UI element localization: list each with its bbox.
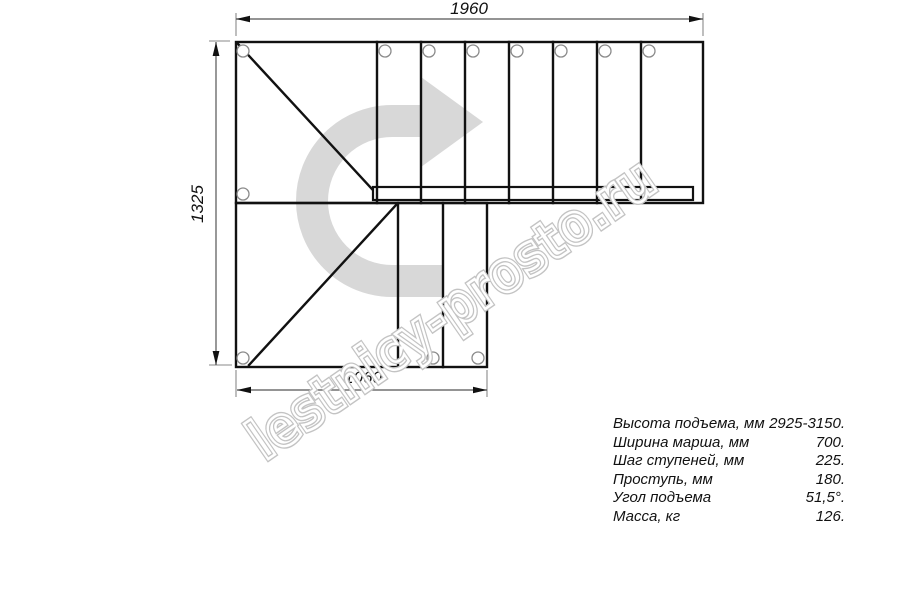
spec-row: Ширина марша, мм 700. <box>613 434 845 453</box>
spec-label: Проступь, мм <box>613 471 713 490</box>
spec-value: 51,5°. <box>806 489 845 508</box>
spec-row: Угол подъема 51,5°. <box>613 489 845 508</box>
mount-hole <box>643 45 655 57</box>
dim-top-label: 1960 <box>450 0 488 18</box>
mount-hole <box>511 45 523 57</box>
spec-value: 700. <box>816 434 845 453</box>
mount-hole <box>467 45 479 57</box>
mount-hole <box>237 352 249 364</box>
spec-row: Масса, кг 126. <box>613 508 845 527</box>
spec-label: Ширина марша, мм <box>613 434 749 453</box>
spec-value: 180. <box>816 471 845 490</box>
spec-row: Шаг ступеней, мм 225. <box>613 452 845 471</box>
dim-left-label: 1325 <box>188 185 207 223</box>
spec-label: Шаг ступеней, мм <box>613 452 744 471</box>
spec-label: Высота подъема, мм <box>613 415 765 434</box>
spec-row: Высота подъема, мм 2925-3150. <box>613 415 845 434</box>
stair-drawing-page: 1960 1325 1060 lestnicy-prosto.ru lestni… <box>0 0 900 600</box>
mount-hole <box>237 45 249 57</box>
direction-arrowhead-icon <box>421 77 483 167</box>
mount-hole <box>599 45 611 57</box>
spec-value: 126. <box>816 508 845 527</box>
mount-hole <box>237 188 249 200</box>
spec-value: 225. <box>816 452 845 471</box>
mount-hole <box>423 45 435 57</box>
spec-label: Масса, кг <box>613 508 680 527</box>
mount-hole <box>379 45 391 57</box>
spec-row: Проступь, мм 180. <box>613 471 845 490</box>
mount-hole <box>472 352 484 364</box>
spec-value: 2925-3150. <box>769 415 845 434</box>
spec-table: Высота подъема, мм 2925-3150. Ширина мар… <box>613 415 845 527</box>
mount-hole <box>555 45 567 57</box>
spec-label: Угол подъема <box>613 489 711 508</box>
